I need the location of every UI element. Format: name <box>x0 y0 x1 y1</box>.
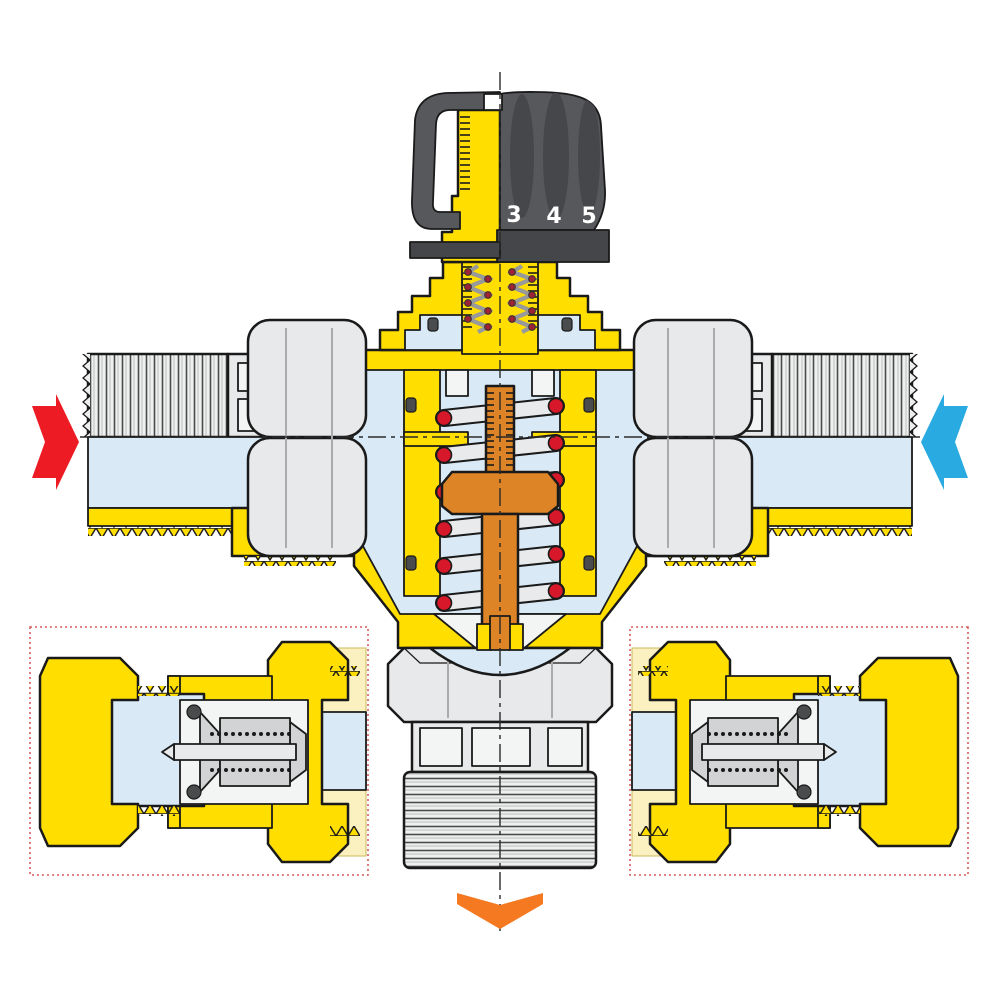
knob-scale-3: 3 <box>506 203 521 228</box>
o-ring-seal <box>406 398 416 412</box>
o-ring-seal <box>406 556 416 570</box>
diagram-canvas: 3 4 5 <box>0 0 1000 1000</box>
knob-scale-4: 4 <box>546 204 561 229</box>
union-nut-right <box>634 320 752 556</box>
o-ring-seal <box>187 785 201 799</box>
check-valve-cartridge <box>162 700 308 804</box>
check-valve-detail-left <box>30 627 368 875</box>
knob-skirt <box>497 230 609 262</box>
o-ring-seal <box>584 398 594 412</box>
mixing-valve-diagram: 3 4 5 <box>0 0 1000 1000</box>
male-thread-left <box>88 354 228 437</box>
temperature-knob: 3 4 5 <box>410 92 609 262</box>
knob-grip-grooves <box>510 92 600 220</box>
o-ring-seal <box>584 556 594 570</box>
o-ring-seal <box>187 705 201 719</box>
cold-inlet-assembly <box>634 320 919 566</box>
hot-inlet-assembly <box>81 320 366 566</box>
check-valve-detail-right <box>630 627 968 875</box>
union-nut-left <box>248 320 366 556</box>
knob-scale-5: 5 <box>581 204 596 229</box>
blue-left-arrow-icon <box>921 394 968 490</box>
red-right-arrow-icon <box>32 394 79 490</box>
